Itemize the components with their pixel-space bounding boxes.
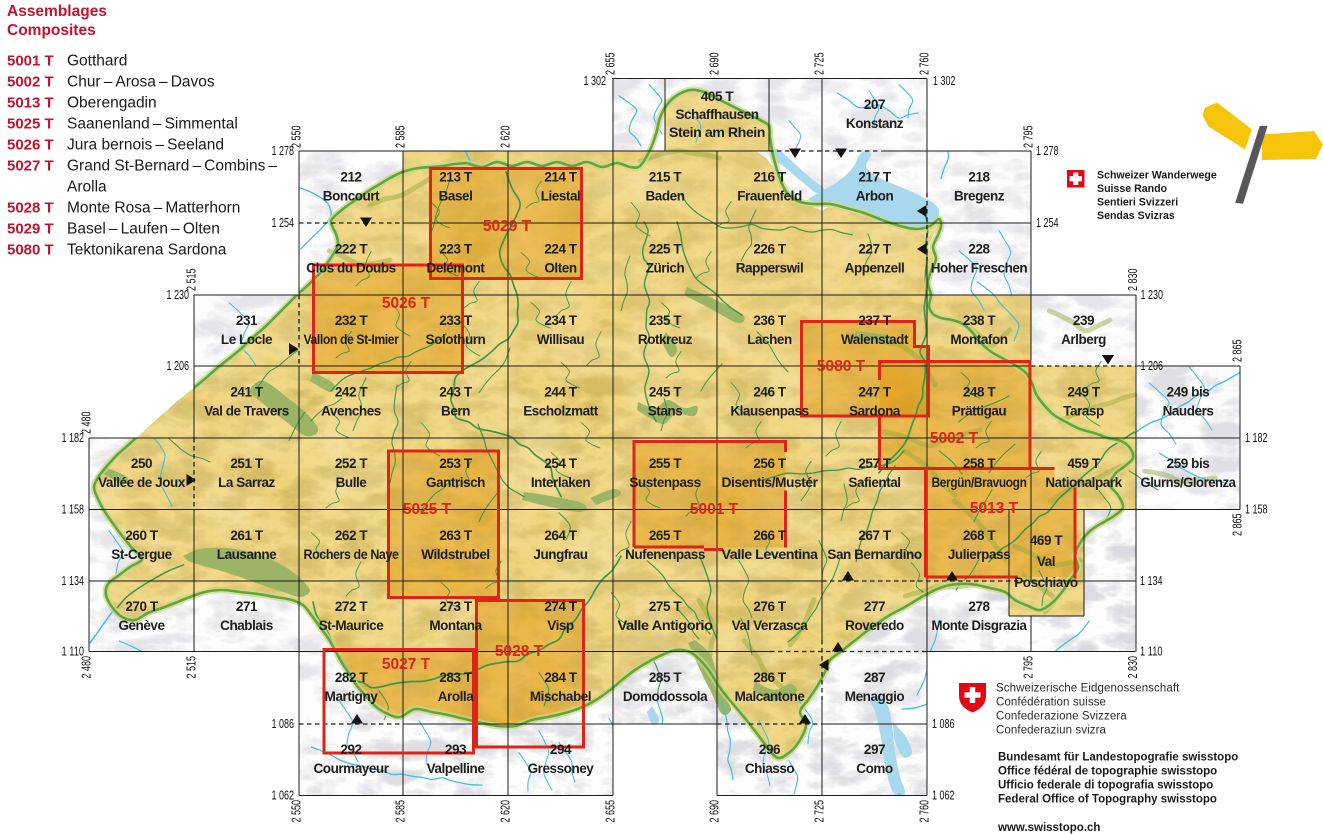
- svg-text:274 T: 274 T: [544, 599, 577, 614]
- svg-text:Glurns/Glorenza: Glurns/Glorenza: [1141, 475, 1237, 490]
- svg-text:2 620: 2 620: [499, 800, 513, 823]
- svg-text:253 T: 253 T: [439, 456, 472, 471]
- svg-text:Como: Como: [856, 761, 893, 776]
- svg-text:5029 T: 5029 T: [483, 218, 532, 235]
- svg-text:2 585: 2 585: [394, 125, 408, 148]
- svg-text:2 725: 2 725: [813, 52, 827, 75]
- svg-text:258 T: 258 T: [963, 456, 996, 471]
- svg-text:296: 296: [759, 742, 781, 757]
- svg-text:Lachen: Lachen: [747, 332, 792, 347]
- svg-text:Stans: Stans: [648, 404, 683, 419]
- svg-text:245 T: 245 T: [649, 385, 682, 400]
- svg-text:285 T: 285 T: [649, 670, 682, 685]
- svg-text:Clos du Doubs: Clos du Doubs: [306, 261, 395, 276]
- svg-text:Sendas Svizras: Sendas Svizras: [1097, 210, 1175, 222]
- svg-text:Lausanne: Lausanne: [217, 547, 277, 562]
- svg-text:212: 212: [340, 170, 361, 185]
- svg-text:293: 293: [445, 742, 467, 757]
- svg-text:Martigny: Martigny: [325, 689, 379, 704]
- svg-text:Federal Office of Topography s: Federal Office of Topography swisstopo: [998, 794, 1217, 806]
- svg-text:Jungfrau: Jungfrau: [533, 547, 587, 562]
- svg-text:284 T: 284 T: [544, 670, 577, 685]
- svg-text:1 302: 1 302: [933, 74, 956, 88]
- svg-text:1 158: 1 158: [1245, 503, 1268, 517]
- svg-text:5025 T: 5025 T: [7, 116, 54, 133]
- svg-text:Bulle: Bulle: [336, 475, 368, 490]
- svg-text:5026 T: 5026 T: [382, 295, 431, 312]
- svg-text:5002 T: 5002 T: [7, 74, 54, 91]
- svg-text:282 T: 282 T: [335, 670, 368, 685]
- svg-text:2 795: 2 795: [1022, 656, 1036, 679]
- svg-text:264 T: 264 T: [544, 528, 577, 543]
- svg-text:Valpelline: Valpelline: [427, 761, 486, 776]
- svg-text:1 254: 1 254: [1036, 216, 1059, 230]
- svg-text:250: 250: [131, 456, 152, 471]
- svg-text:Chiasso: Chiasso: [745, 761, 795, 776]
- svg-text:248 T: 248 T: [963, 385, 996, 400]
- svg-text:287: 287: [864, 670, 885, 685]
- svg-text:227 T: 227 T: [858, 242, 891, 257]
- svg-text:Poschiavo: Poschiavo: [1014, 575, 1078, 590]
- svg-text:Konstanz: Konstanz: [846, 116, 904, 131]
- svg-text:234 T: 234 T: [544, 313, 577, 328]
- svg-text:2 515: 2 515: [185, 268, 199, 291]
- svg-text:Appenzell: Appenzell: [845, 261, 905, 276]
- svg-text:1 062: 1 062: [932, 789, 955, 803]
- svg-text:217 T: 217 T: [858, 170, 891, 185]
- svg-text:265 T: 265 T: [649, 528, 682, 543]
- svg-text:2 480: 2 480: [80, 411, 94, 434]
- svg-text:226 T: 226 T: [753, 242, 786, 257]
- svg-text:242 T: 242 T: [335, 385, 368, 400]
- svg-text:2 515: 2 515: [185, 656, 199, 679]
- svg-text:5002 T: 5002 T: [930, 430, 979, 447]
- svg-text:263 T: 263 T: [439, 528, 472, 543]
- svg-text:283 T: 283 T: [439, 670, 472, 685]
- svg-text:Schweizer Wanderwege: Schweizer Wanderwege: [1097, 170, 1217, 182]
- svg-text:Saanenland – Simmental: Saanenland – Simmental: [67, 116, 238, 133]
- svg-text:Menaggio: Menaggio: [845, 689, 905, 704]
- svg-text:Composites: Composites: [7, 22, 96, 39]
- svg-text:1 230: 1 230: [1141, 288, 1164, 302]
- svg-text:239: 239: [1073, 313, 1094, 328]
- svg-text:2 585: 2 585: [394, 800, 408, 823]
- svg-text:Disentis/Mustér: Disentis/Mustér: [722, 475, 819, 490]
- svg-text:259 bis: 259 bis: [1167, 456, 1210, 471]
- svg-text:Baden: Baden: [645, 189, 684, 204]
- svg-text:Montafon: Montafon: [950, 332, 1007, 347]
- svg-text:294: 294: [550, 742, 572, 757]
- svg-text:Arolla: Arolla: [67, 179, 107, 196]
- svg-text:2 830: 2 830: [1126, 656, 1140, 679]
- svg-text:216 T: 216 T: [753, 170, 786, 185]
- svg-text:Gantrisch: Gantrisch: [426, 475, 485, 490]
- svg-text:255 T: 255 T: [649, 456, 682, 471]
- svg-text:2 655: 2 655: [604, 800, 618, 823]
- svg-text:267 T: 267 T: [858, 528, 891, 543]
- svg-text:Chur – Arosa – Davos: Chur – Arosa – Davos: [67, 74, 215, 91]
- svg-text:2 550: 2 550: [290, 125, 304, 148]
- svg-text:261 T: 261 T: [230, 528, 263, 543]
- svg-text:Prättigau: Prättigau: [952, 404, 1007, 419]
- svg-text:297: 297: [864, 742, 885, 757]
- svg-text:1 302: 1 302: [584, 74, 607, 88]
- svg-text:Valle Antigorio: Valle Antigorio: [618, 618, 713, 633]
- svg-text:Delémont: Delémont: [427, 261, 486, 276]
- svg-text:2 480: 2 480: [80, 656, 94, 679]
- svg-text:2 655: 2 655: [604, 52, 618, 75]
- svg-text:Suisse Rando: Suisse Rando: [1097, 183, 1168, 195]
- svg-text:Zürich: Zürich: [646, 261, 685, 276]
- svg-text:Chablais: Chablais: [220, 618, 273, 633]
- svg-text:1 134: 1 134: [62, 574, 85, 588]
- svg-text:244 T: 244 T: [544, 385, 577, 400]
- svg-text:232 T: 232 T: [335, 313, 368, 328]
- svg-text:233 T: 233 T: [439, 313, 472, 328]
- svg-text:Confederaziun svizra: Confederaziun svizra: [996, 725, 1107, 737]
- svg-text:5013 T: 5013 T: [7, 95, 54, 112]
- svg-text:1 134: 1 134: [1140, 574, 1163, 588]
- svg-text:228: 228: [968, 242, 990, 257]
- svg-text:257 T: 257 T: [858, 456, 891, 471]
- svg-text:1 110: 1 110: [1140, 645, 1163, 659]
- svg-text:San Bernardino: San Bernardino: [827, 547, 921, 562]
- svg-text:5026 T: 5026 T: [7, 137, 54, 154]
- svg-text:Hoher Freschen: Hoher Freschen: [931, 261, 1028, 276]
- svg-text:249 bis: 249 bis: [1167, 385, 1210, 400]
- svg-text:5027 T: 5027 T: [382, 656, 431, 673]
- svg-text:238 T: 238 T: [963, 313, 996, 328]
- svg-text:Escholzmatt: Escholzmatt: [523, 404, 599, 419]
- svg-text:Office fédéral de topographie: Office fédéral de topographie swisstopo: [998, 766, 1217, 778]
- svg-text:222 T: 222 T: [335, 242, 368, 257]
- svg-text:Basel – Laufen – Olten: Basel – Laufen – Olten: [67, 221, 220, 238]
- svg-text:Walenstadt: Walenstadt: [841, 332, 909, 347]
- svg-text:266 T: 266 T: [753, 528, 786, 543]
- svg-text:1 278: 1 278: [1036, 144, 1059, 158]
- svg-text:1 254: 1 254: [272, 216, 295, 230]
- svg-text:Schaffhausen: Schaffhausen: [675, 107, 758, 122]
- svg-text:Julierpass: Julierpass: [948, 547, 1010, 562]
- svg-text:2 760: 2 760: [918, 52, 932, 75]
- svg-text:St-Cergue: St-Cergue: [111, 547, 172, 562]
- svg-text:Le Locle: Le Locle: [221, 332, 273, 347]
- svg-text:Nufenenpass: Nufenenpass: [625, 547, 705, 562]
- svg-text:Sardona: Sardona: [849, 404, 901, 419]
- svg-text:254 T: 254 T: [544, 456, 577, 471]
- svg-text:Val: Val: [1037, 554, 1055, 569]
- svg-text:246 T: 246 T: [753, 385, 786, 400]
- svg-text:5028 T: 5028 T: [495, 643, 544, 660]
- svg-text:Nationalpark: Nationalpark: [1045, 475, 1122, 490]
- svg-text:Jura bernois – Seeland: Jura bernois – Seeland: [67, 137, 224, 154]
- svg-text:272 T: 272 T: [335, 599, 368, 614]
- svg-text:Gressoney: Gressoney: [528, 761, 595, 776]
- svg-text:Monte Disgrazia: Monte Disgrazia: [932, 618, 1028, 633]
- svg-text:Sentieri Svizzeri: Sentieri Svizzeri: [1097, 197, 1178, 209]
- svg-text:1 206: 1 206: [1141, 359, 1164, 373]
- svg-text:270 T: 270 T: [125, 599, 158, 614]
- svg-text:207: 207: [864, 97, 885, 112]
- svg-text:260 T: 260 T: [125, 528, 158, 543]
- svg-text:Vallon de St-Imier: Vallon de St-Imier: [304, 332, 400, 347]
- svg-text:Bergün/Bravuogn: Bergün/Bravuogn: [932, 475, 1027, 490]
- svg-text:Val Verzasca: Val Verzasca: [732, 618, 809, 633]
- svg-text:Olten: Olten: [544, 261, 576, 276]
- svg-text:Ufficio federale di topografia: Ufficio federale di topografia swisstopo: [998, 780, 1213, 792]
- svg-text:459 T: 459 T: [1067, 456, 1100, 471]
- svg-text:1 182: 1 182: [1245, 431, 1268, 445]
- svg-text:215 T: 215 T: [649, 170, 682, 185]
- svg-text:Courmayeur: Courmayeur: [313, 761, 389, 776]
- svg-text:Interlaken: Interlaken: [531, 475, 590, 490]
- svg-text:236 T: 236 T: [753, 313, 786, 328]
- svg-text:235 T: 235 T: [649, 313, 682, 328]
- svg-text:Confederazione Svizzera: Confederazione Svizzera: [996, 711, 1127, 723]
- svg-text:2 865: 2 865: [1231, 339, 1245, 362]
- svg-text:Domodossola: Domodossola: [623, 689, 708, 704]
- svg-text:223 T: 223 T: [439, 242, 472, 257]
- svg-text:286 T: 286 T: [753, 670, 786, 685]
- svg-text:St-Maurice: St-Maurice: [319, 618, 384, 633]
- svg-text:2 795: 2 795: [1022, 125, 1036, 148]
- svg-text:275 T: 275 T: [649, 599, 682, 614]
- svg-text:5080 T: 5080 T: [7, 242, 54, 259]
- svg-text:Bregenz: Bregenz: [954, 189, 1005, 204]
- svg-text:Roveredo: Roveredo: [845, 618, 904, 633]
- svg-text:Safiental: Safiental: [848, 475, 900, 490]
- svg-text:Assemblages: Assemblages: [7, 3, 107, 20]
- svg-text:Valle Leventina: Valle Leventina: [722, 547, 819, 562]
- svg-text:5001 T: 5001 T: [690, 501, 739, 518]
- svg-text:218: 218: [968, 170, 990, 185]
- svg-text:Sustenpass: Sustenpass: [629, 475, 700, 490]
- svg-text:5001 T: 5001 T: [7, 53, 54, 70]
- svg-text:Grand St-Bernard – Combins –: Grand St-Bernard – Combins –: [67, 158, 277, 175]
- svg-text:273 T: 273 T: [439, 599, 472, 614]
- svg-text:Rochers de Naye: Rochers de Naye: [304, 547, 400, 562]
- svg-text:262 T: 262 T: [335, 528, 368, 543]
- svg-text:469 T: 469 T: [1030, 533, 1063, 548]
- svg-text:Confédération suisse: Confédération suisse: [996, 697, 1106, 709]
- svg-text:Boncourt: Boncourt: [323, 189, 380, 204]
- svg-text:Vallée de Joux: Vallée de Joux: [98, 475, 186, 490]
- svg-text:5080 T: 5080 T: [817, 358, 866, 375]
- svg-text:243 T: 243 T: [439, 385, 472, 400]
- svg-text:5013 T: 5013 T: [970, 500, 1019, 517]
- svg-text:Arlberg: Arlberg: [1061, 332, 1106, 347]
- svg-text:Tektonikarena Sardona: Tektonikarena Sardona: [67, 242, 227, 259]
- svg-text:251 T: 251 T: [230, 456, 263, 471]
- svg-text:2 690: 2 690: [708, 800, 722, 823]
- svg-text:Malcantone: Malcantone: [735, 689, 806, 704]
- svg-text:Stein am Rhein: Stein am Rhein: [669, 125, 765, 140]
- svg-text:2 760: 2 760: [918, 800, 932, 823]
- svg-text:405 T: 405 T: [701, 89, 734, 104]
- svg-text:237 T: 237 T: [858, 313, 891, 328]
- svg-text:277: 277: [864, 599, 885, 614]
- svg-text:276 T: 276 T: [753, 599, 786, 614]
- svg-text:Val de Travers: Val de Travers: [204, 404, 289, 419]
- svg-text:1 206: 1 206: [167, 359, 190, 373]
- svg-text:271: 271: [236, 599, 258, 614]
- svg-text:249 T: 249 T: [1067, 385, 1100, 400]
- svg-text:www.swisstopo.ch: www.swisstopo.ch: [997, 822, 1100, 834]
- svg-text:Bern: Bern: [441, 404, 470, 419]
- svg-text:2 865: 2 865: [1231, 513, 1245, 536]
- svg-text:Rapperswil: Rapperswil: [736, 261, 804, 276]
- svg-text:Tarasp: Tarasp: [1063, 404, 1104, 419]
- svg-text:Genève: Genève: [118, 618, 165, 633]
- svg-text:247 T: 247 T: [858, 385, 891, 400]
- svg-text:Monte Rosa – Matterhorn: Monte Rosa – Matterhorn: [67, 200, 240, 217]
- svg-text:Klausenpass: Klausenpass: [730, 404, 808, 419]
- svg-text:Nauders: Nauders: [1163, 404, 1214, 419]
- svg-text:256 T: 256 T: [753, 456, 786, 471]
- svg-text:1 086: 1 086: [932, 717, 955, 731]
- svg-text:213 T: 213 T: [439, 170, 472, 185]
- svg-text:Rotkreuz: Rotkreuz: [638, 332, 693, 347]
- svg-text:252 T: 252 T: [335, 456, 368, 471]
- svg-text:268 T: 268 T: [963, 528, 996, 543]
- svg-text:La Sarraz: La Sarraz: [218, 475, 275, 490]
- svg-text:241 T: 241 T: [230, 385, 263, 400]
- svg-text:2 690: 2 690: [708, 52, 722, 75]
- svg-text:Solothurn: Solothurn: [426, 332, 486, 347]
- svg-text:5028 T: 5028 T: [7, 200, 54, 217]
- svg-text:Arolla: Arolla: [438, 689, 475, 704]
- svg-text:Montana: Montana: [429, 618, 482, 633]
- svg-text:Basel: Basel: [439, 189, 473, 204]
- svg-text:5029 T: 5029 T: [7, 221, 54, 238]
- svg-text:Gotthard: Gotthard: [67, 53, 127, 70]
- svg-text:Arbon: Arbon: [856, 189, 894, 204]
- svg-text:2 620: 2 620: [499, 125, 513, 148]
- svg-text:225 T: 225 T: [649, 242, 682, 257]
- svg-text:2 725: 2 725: [813, 800, 827, 823]
- svg-text:2 830: 2 830: [1126, 268, 1140, 291]
- svg-text:5025 T: 5025 T: [403, 501, 452, 518]
- svg-text:231: 231: [236, 313, 258, 328]
- svg-text:Liestal: Liestal: [541, 189, 581, 204]
- svg-text:1 086: 1 086: [272, 717, 295, 731]
- svg-text:Avenches: Avenches: [321, 404, 381, 419]
- svg-text:Wildstrubel: Wildstrubel: [421, 547, 489, 562]
- svg-text:Schweizerische Eidgenossenscha: Schweizerische Eidgenossenschaft: [996, 683, 1180, 695]
- svg-text:224 T: 224 T: [544, 242, 577, 257]
- svg-text:Frauenfeld: Frauenfeld: [737, 189, 802, 204]
- svg-text:214 T: 214 T: [544, 170, 577, 185]
- svg-text:Mischabel: Mischabel: [530, 689, 591, 704]
- svg-text:292: 292: [340, 742, 361, 757]
- svg-text:Oberengadin: Oberengadin: [67, 95, 157, 112]
- svg-text:1 158: 1 158: [62, 503, 85, 517]
- svg-text:Visp: Visp: [547, 618, 574, 633]
- svg-text:2 550: 2 550: [290, 800, 304, 823]
- svg-text:Willisau: Willisau: [537, 332, 584, 347]
- svg-text:278: 278: [968, 599, 990, 614]
- svg-text:5027 T: 5027 T: [7, 158, 54, 175]
- svg-text:Bundesamt für Landestopografie: Bundesamt für Landestopografie swisstopo: [998, 752, 1238, 764]
